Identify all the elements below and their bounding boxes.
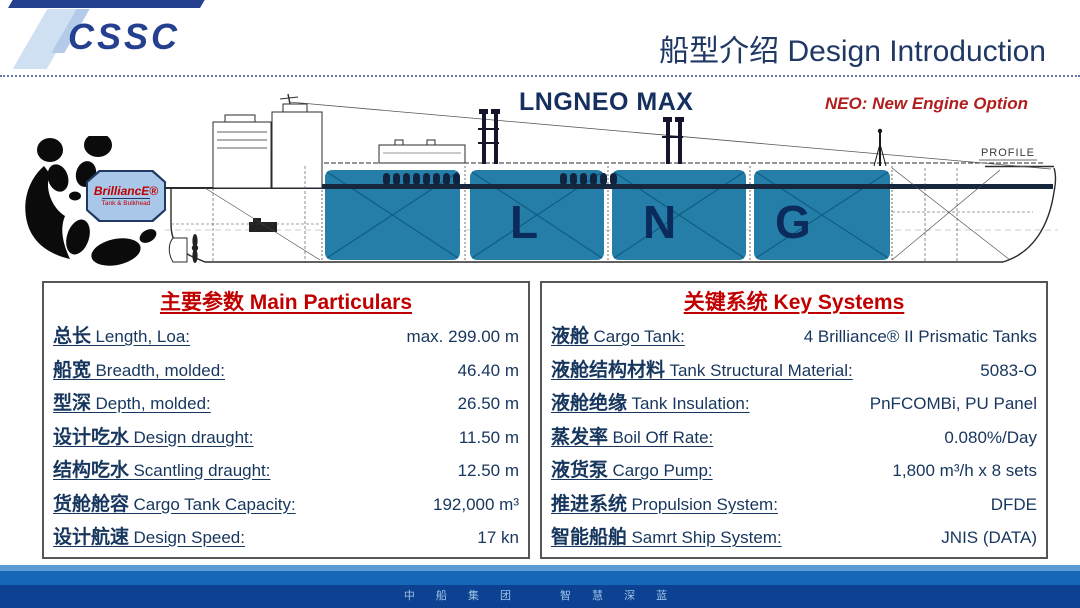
spec-label-cn: 液舱绝缘 xyxy=(551,393,627,414)
spec-label-en: Breadth, molded: xyxy=(95,361,224,380)
spec-label-cn: 总长 xyxy=(53,326,91,347)
spec-label-en: Samrt Ship System: xyxy=(631,528,781,547)
spec-label-cn: 型深 xyxy=(53,393,91,414)
badge-title: BrilliancE® xyxy=(94,184,158,198)
spec-label-en: Length, Loa: xyxy=(95,327,190,346)
brilliance-badge: BrilliancE® Tank & Bulkhead xyxy=(86,170,166,222)
key-systems-title: 关键系统 Key Systems xyxy=(551,285,1037,321)
table-row: 智能船舶 Samrt Ship System: JNIS (DATA) xyxy=(551,522,1037,556)
table-row: 液货泵 Cargo Pump: 1,800 m³/h x 8 sets xyxy=(551,455,1037,489)
table-row: 型深 Depth, molded: 26.50 m xyxy=(53,388,519,422)
table-row: 液舱绝缘 Tank Insulation: PnFCOMBi, PU Panel xyxy=(551,388,1037,422)
spec-label: 设计吃水 Design draught: xyxy=(53,422,254,449)
table-row: 船宽 Breadth, molded: 46.40 m xyxy=(53,355,519,389)
spec-label-en: Tank Structural Material: xyxy=(669,361,852,380)
spec-value: 5083-O xyxy=(980,361,1037,381)
spec-value: max. 299.00 m xyxy=(407,327,519,347)
table-row: 设计吃水 Design draught: 11.50 m xyxy=(53,422,519,456)
spec-label-cn: 设计航速 xyxy=(53,527,129,548)
header-divider xyxy=(0,75,1080,77)
footer-bar: 中 船 集 团 智 慧 深 蓝 xyxy=(0,585,1080,608)
spec-label: 智能船舶 Samrt Ship System: xyxy=(551,522,782,549)
panda-hind-leg xyxy=(89,234,143,268)
propeller-hub xyxy=(192,245,198,251)
spec-value: 46.40 m xyxy=(458,361,519,381)
spec-label: 液货泵 Cargo Pump: xyxy=(551,455,713,482)
main-particulars-table: 主要参数 Main Particulars 总长 Length, Loa: ma… xyxy=(42,281,530,559)
spec-value: DFDE xyxy=(991,495,1037,515)
spec-label-en: Scantling draught: xyxy=(133,461,270,480)
spec-value: 0.080%/Day xyxy=(944,428,1037,448)
spec-label-cn: 液货泵 xyxy=(551,460,608,481)
spec-label-cn: 液舱结构材料 xyxy=(551,360,665,381)
spec-label-en: Cargo Tank: xyxy=(593,327,684,346)
logo-top-bar xyxy=(8,0,205,8)
spec-label: 液舱结构材料 Tank Structural Material: xyxy=(551,355,853,382)
footer-stripe-mid xyxy=(0,571,1080,585)
page-title: 船型介绍 Design Introduction xyxy=(659,26,1046,70)
spec-label: 推进系统 Propulsion System: xyxy=(551,489,778,516)
spec-value: 17 kn xyxy=(477,528,519,548)
spec-label-en: Boil Off Rate: xyxy=(612,428,713,447)
spec-label-cn: 液舱 xyxy=(551,326,589,347)
spec-label-en: Propulsion System: xyxy=(631,495,777,514)
key-systems-table: 关键系统 Key Systems 液舱 Cargo Tank: 4 Brilli… xyxy=(540,281,1048,559)
spec-label-cn: 蒸发率 xyxy=(551,427,608,448)
spec-value: JNIS (DATA) xyxy=(941,528,1037,548)
spec-label-en: Tank Insulation: xyxy=(631,394,749,413)
table-row: 蒸发率 Boil Off Rate: 0.080%/Day xyxy=(551,422,1037,456)
spec-label: 液舱绝缘 Tank Insulation: xyxy=(551,388,750,415)
panda-paw xyxy=(137,226,159,245)
table-row: 货舱舱容 Cargo Tank Capacity: 192,000 m³ xyxy=(53,489,519,523)
table-row: 总长 Length, Loa: max. 299.00 m xyxy=(53,321,519,355)
table-row: 设计航速 Design Speed: 17 kn xyxy=(53,522,519,556)
spec-value: 192,000 m³ xyxy=(433,495,519,515)
table-row: 液舱 Cargo Tank: 4 Brilliance® II Prismati… xyxy=(551,321,1037,355)
spec-label-cn: 设计吃水 xyxy=(53,427,129,448)
rudder xyxy=(169,238,187,262)
spec-label-en: Cargo Tank Capacity: xyxy=(133,495,295,514)
panda-ear xyxy=(37,138,63,162)
spec-label-en: Design Speed: xyxy=(133,528,245,547)
spec-value: 1,800 m³/h x 8 sets xyxy=(892,461,1037,481)
spec-label: 设计航速 Design Speed: xyxy=(53,522,245,549)
aft-mast xyxy=(288,94,290,104)
spec-label-cn: 推进系统 xyxy=(551,494,627,515)
main-particulars-title: 主要参数 Main Particulars xyxy=(53,285,519,321)
spec-label-cn: 结构吃水 xyxy=(53,460,129,481)
spec-label-en: Cargo Pump: xyxy=(612,461,712,480)
engine-casing xyxy=(272,112,322,188)
cargo-tanks: L N G xyxy=(325,170,890,260)
spec-label: 船宽 Breadth, molded: xyxy=(53,355,225,382)
spec-value: 26.50 m xyxy=(458,394,519,414)
profile-label: PROFILE xyxy=(981,147,1035,159)
spec-label-en: Design draught: xyxy=(133,428,253,447)
table-row: 液舱结构材料 Tank Structural Material: 5083-O xyxy=(551,355,1037,389)
panda-ear xyxy=(84,136,112,157)
spec-label-en: Depth, molded: xyxy=(95,394,210,413)
spec-label: 结构吃水 Scantling draught: xyxy=(53,455,271,482)
spec-label-cn: 船宽 xyxy=(53,360,91,381)
spec-label: 型深 Depth, molded: xyxy=(53,388,211,415)
superstructure xyxy=(213,94,322,188)
panda-front-leg xyxy=(62,216,94,257)
tank-letter-g: G xyxy=(775,196,811,248)
spec-label-cn: 智能船舶 xyxy=(551,527,627,548)
spec-value: 12.50 m xyxy=(458,461,519,481)
fore-mast xyxy=(874,129,886,166)
tank-letter-n: N xyxy=(643,196,676,248)
table-row: 推进系统 Propulsion System: DFDE xyxy=(551,489,1037,523)
spec-value: 11.50 m xyxy=(459,428,519,448)
spec-value: PnFCOMBi, PU Panel xyxy=(870,394,1037,414)
cssc-logo: CSSC xyxy=(68,16,180,58)
table-row: 结构吃水 Scantling draught: 12.50 m xyxy=(53,455,519,489)
tank-letter-l: L xyxy=(510,196,538,248)
funnel-top xyxy=(283,104,307,112)
spec-value: 4 Brilliance® II Prismatic Tanks xyxy=(804,327,1037,347)
spec-label: 总长 Length, Loa: xyxy=(53,321,190,348)
ship-profile-drawing: L N G xyxy=(165,92,1065,278)
vent-masts xyxy=(478,109,684,164)
deckhouse xyxy=(379,140,465,163)
stern-gear xyxy=(169,218,277,263)
spec-label: 货舱舱容 Cargo Tank Capacity: xyxy=(53,489,296,516)
brilliance-badge-face: BrilliancE® Tank & Bulkhead xyxy=(88,172,164,220)
spec-label: 液舱 Cargo Tank: xyxy=(551,321,685,348)
slide: CSSC 船型介绍 Design Introduction LNGNEO MAX… xyxy=(0,0,1080,608)
spec-label: 蒸发率 Boil Off Rate: xyxy=(551,422,713,449)
panda-nose xyxy=(69,192,81,201)
badge-subtitle: Tank & Bulkhead xyxy=(102,198,151,208)
spec-label-cn: 货舱舱容 xyxy=(53,494,129,515)
